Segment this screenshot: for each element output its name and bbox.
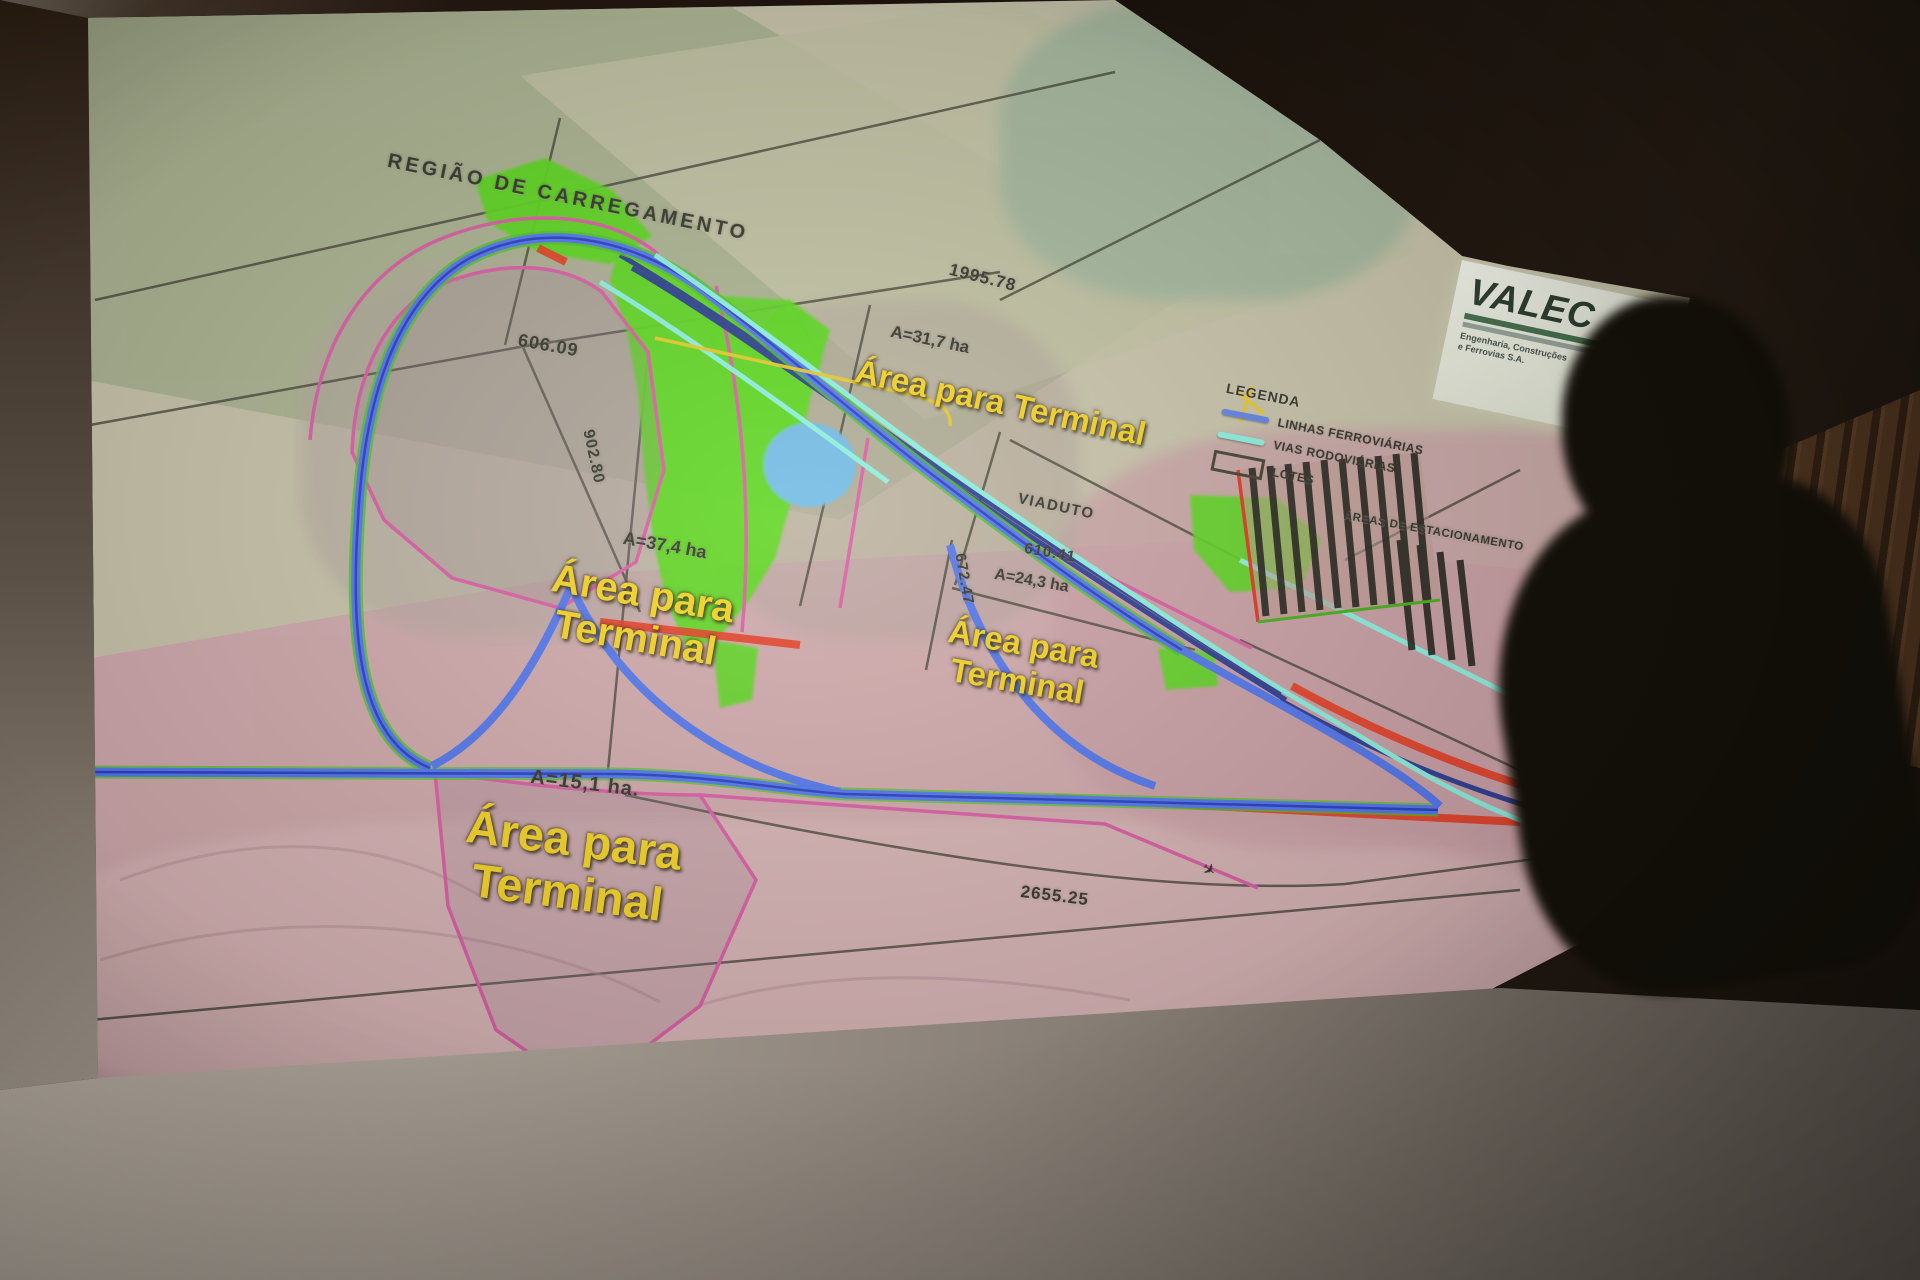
projection-photo: REGIÃO DE CARREGAMENTO 1995.78 A=31,7 ha… — [0, 0, 1920, 1280]
